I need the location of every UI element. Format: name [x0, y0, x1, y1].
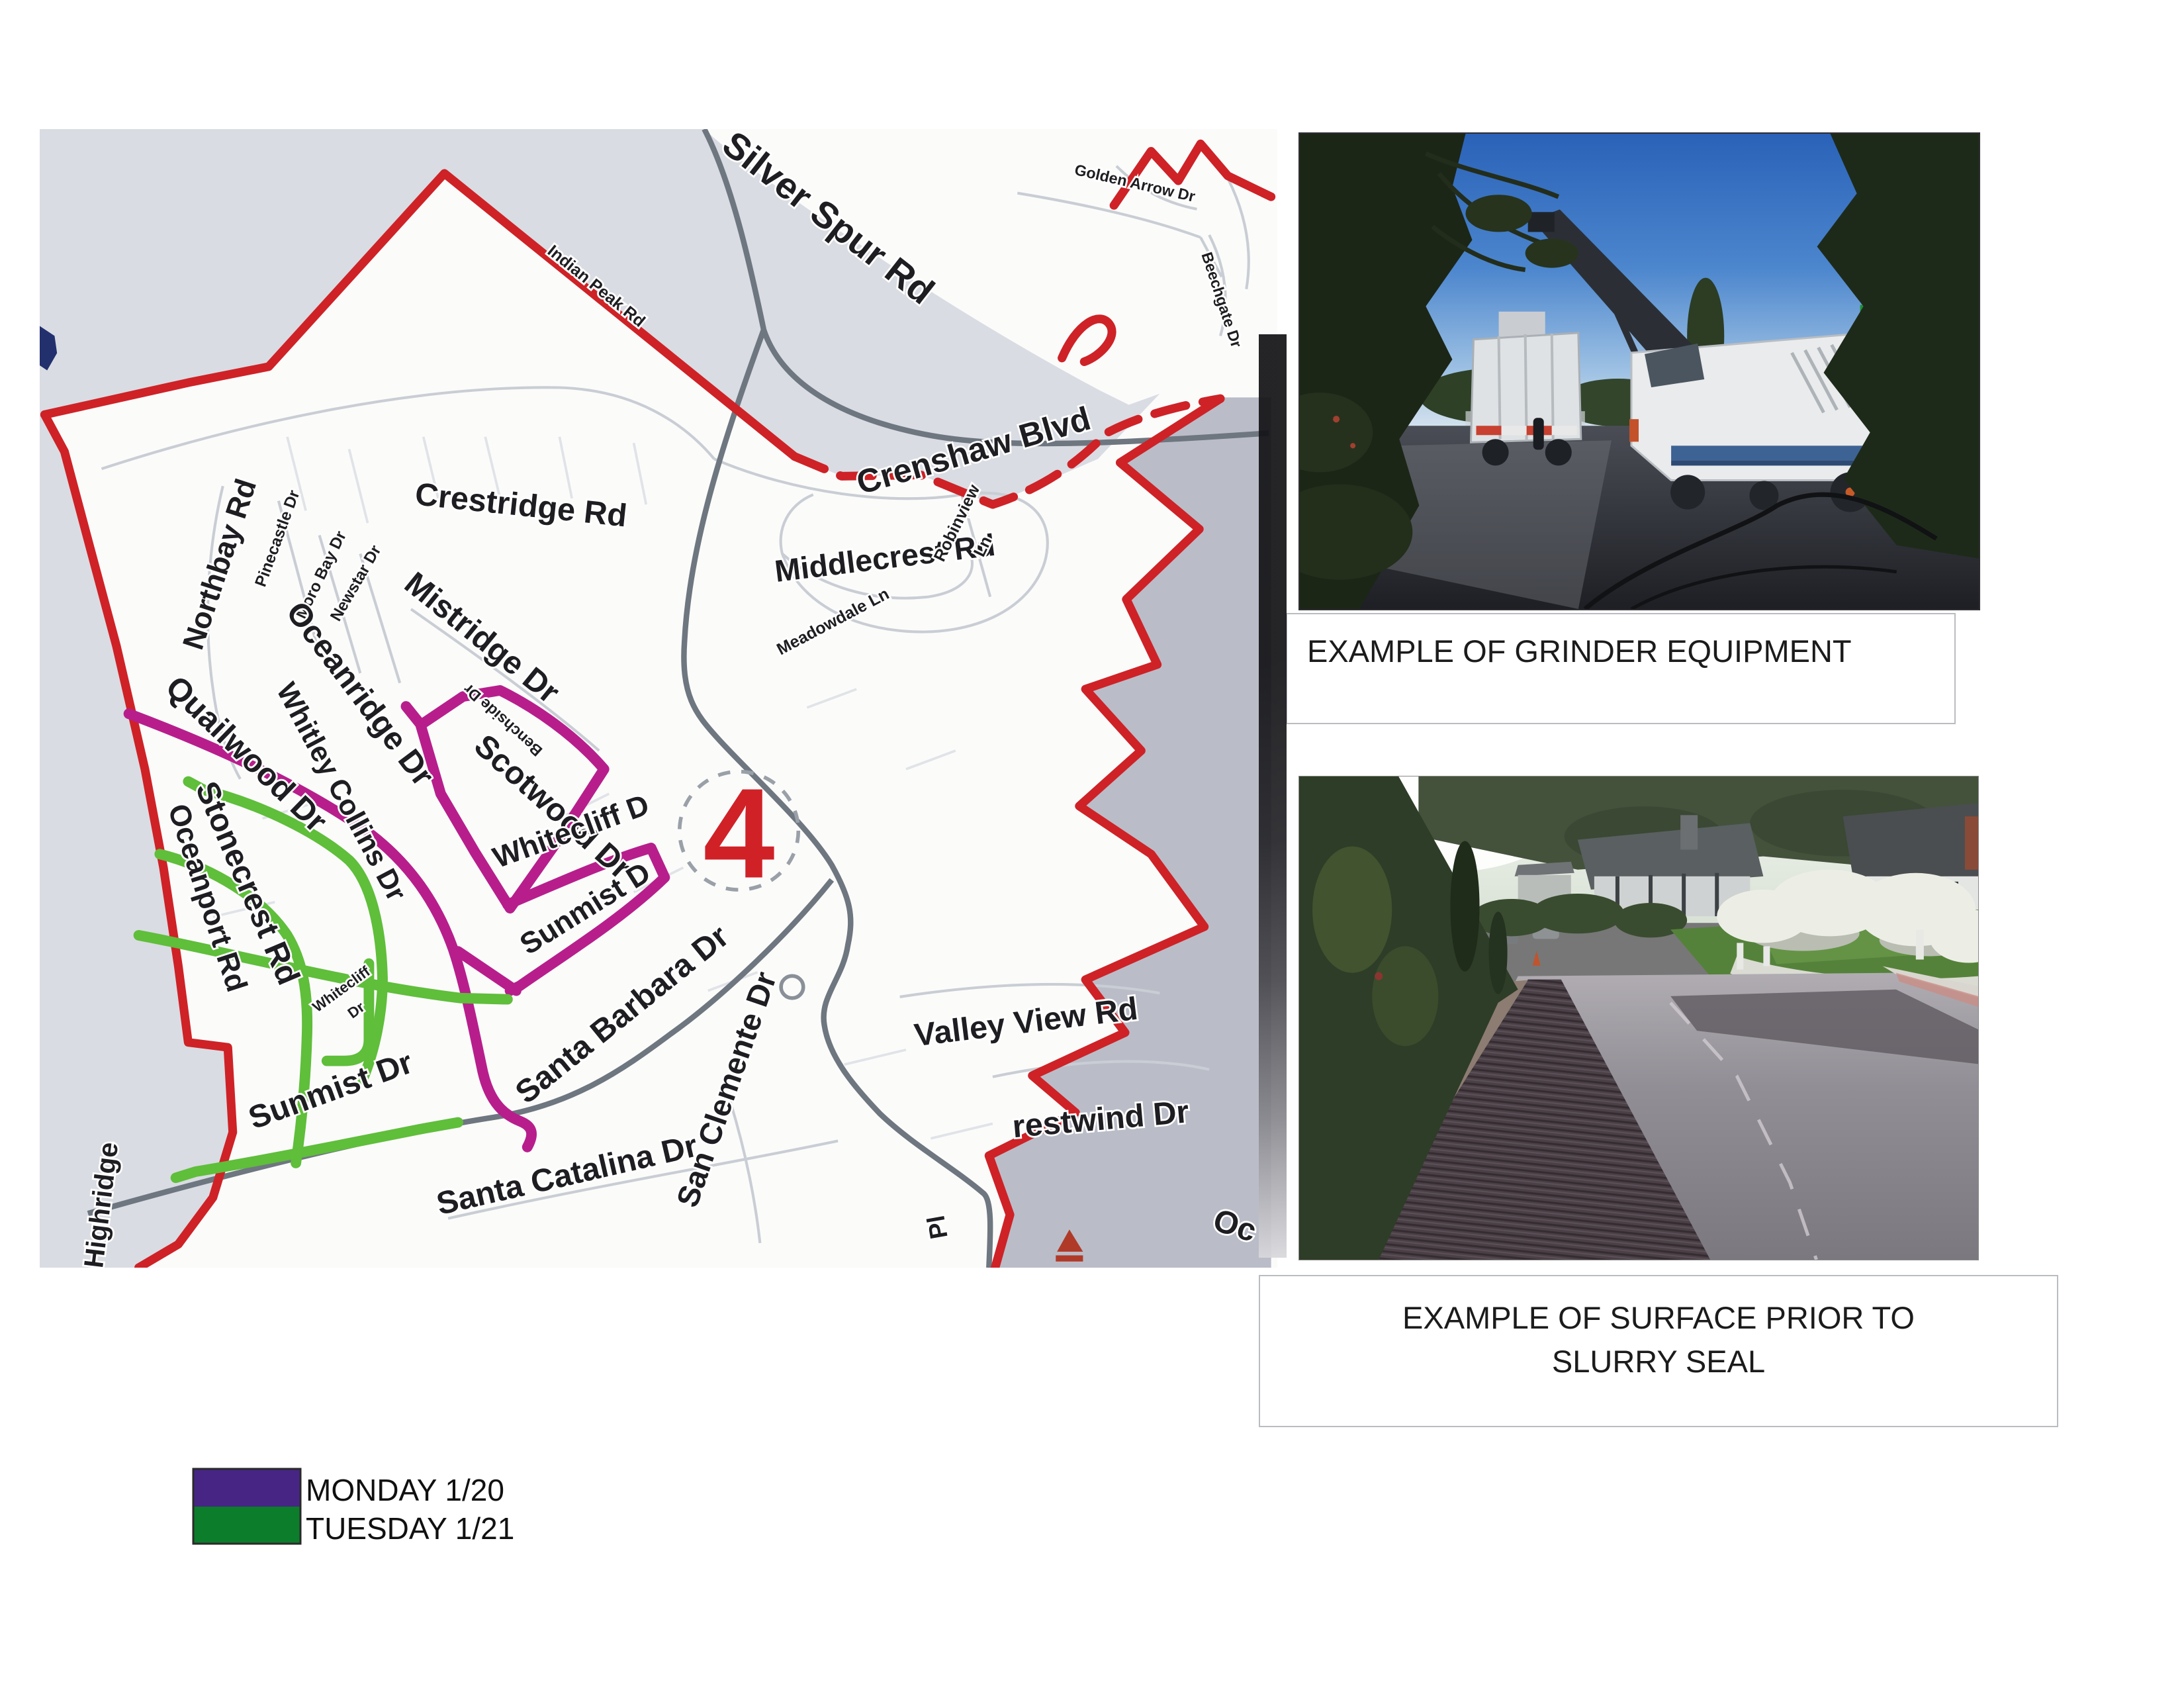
scan-shadow-artifact: [1259, 334, 1287, 1258]
photo-grinder-equipment: [1298, 132, 1980, 610]
caption-surface-line2: SLURRY SEAL: [1260, 1340, 2057, 1383]
photo-road-surface: [1298, 776, 1979, 1260]
legend-monday-color: [193, 1469, 300, 1507]
legend-label-tuesday: TUESDAY 1/21: [306, 1511, 514, 1546]
caption-surface: EXAMPLE OF SURFACE PRIOR TO SLURRY SEAL: [1259, 1275, 2058, 1427]
caption-surface-line1: EXAMPLE OF SURFACE PRIOR TO: [1260, 1296, 2057, 1340]
legend-label-monday: MONDAY 1/20: [306, 1472, 504, 1508]
roundabout: [781, 976, 803, 998]
district-map: 4 Silver Spur Rd Golden Arrow Dr Beechga…: [40, 129, 1277, 1268]
district-number: 4: [703, 762, 774, 905]
caption-grinder-text: EXAMPLE OF GRINDER EQUIPMENT: [1307, 633, 1852, 669]
street-label-pl-fragment: Pl: [921, 1213, 953, 1241]
legend-swatch: [192, 1468, 302, 1545]
caption-grinder: EXAMPLE OF GRINDER EQUIPMENT: [1286, 613, 1956, 724]
legend-tuesday-color: [193, 1507, 300, 1544]
surface-photo-illustration: [1299, 776, 1978, 1260]
grinder-photo-illustration: [1300, 134, 1979, 609]
